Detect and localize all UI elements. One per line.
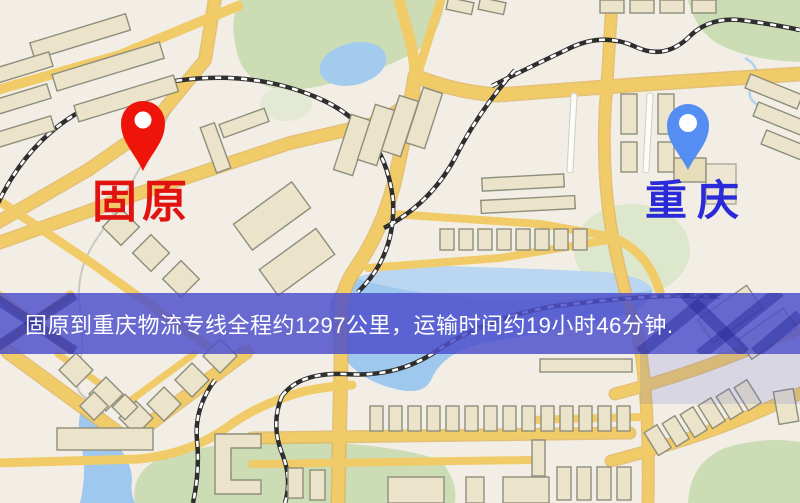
banner-tint-bleed (640, 354, 800, 404)
destination-city-label: 重庆 (645, 180, 749, 222)
logistics-map: 固原到重庆物流专线全程约1297公里，运输时间约19小时46分钟. 固原 重庆 (0, 0, 800, 503)
route-info-banner: 固原到重庆物流专线全程约1297公里，运输时间约19小时46分钟. (0, 293, 800, 354)
map-canvas (0, 0, 800, 503)
route-info-text: 固原到重庆物流专线全程约1297公里，运输时间约19小时46分钟. (0, 308, 674, 340)
origin-city-label: 固原 (92, 179, 192, 224)
